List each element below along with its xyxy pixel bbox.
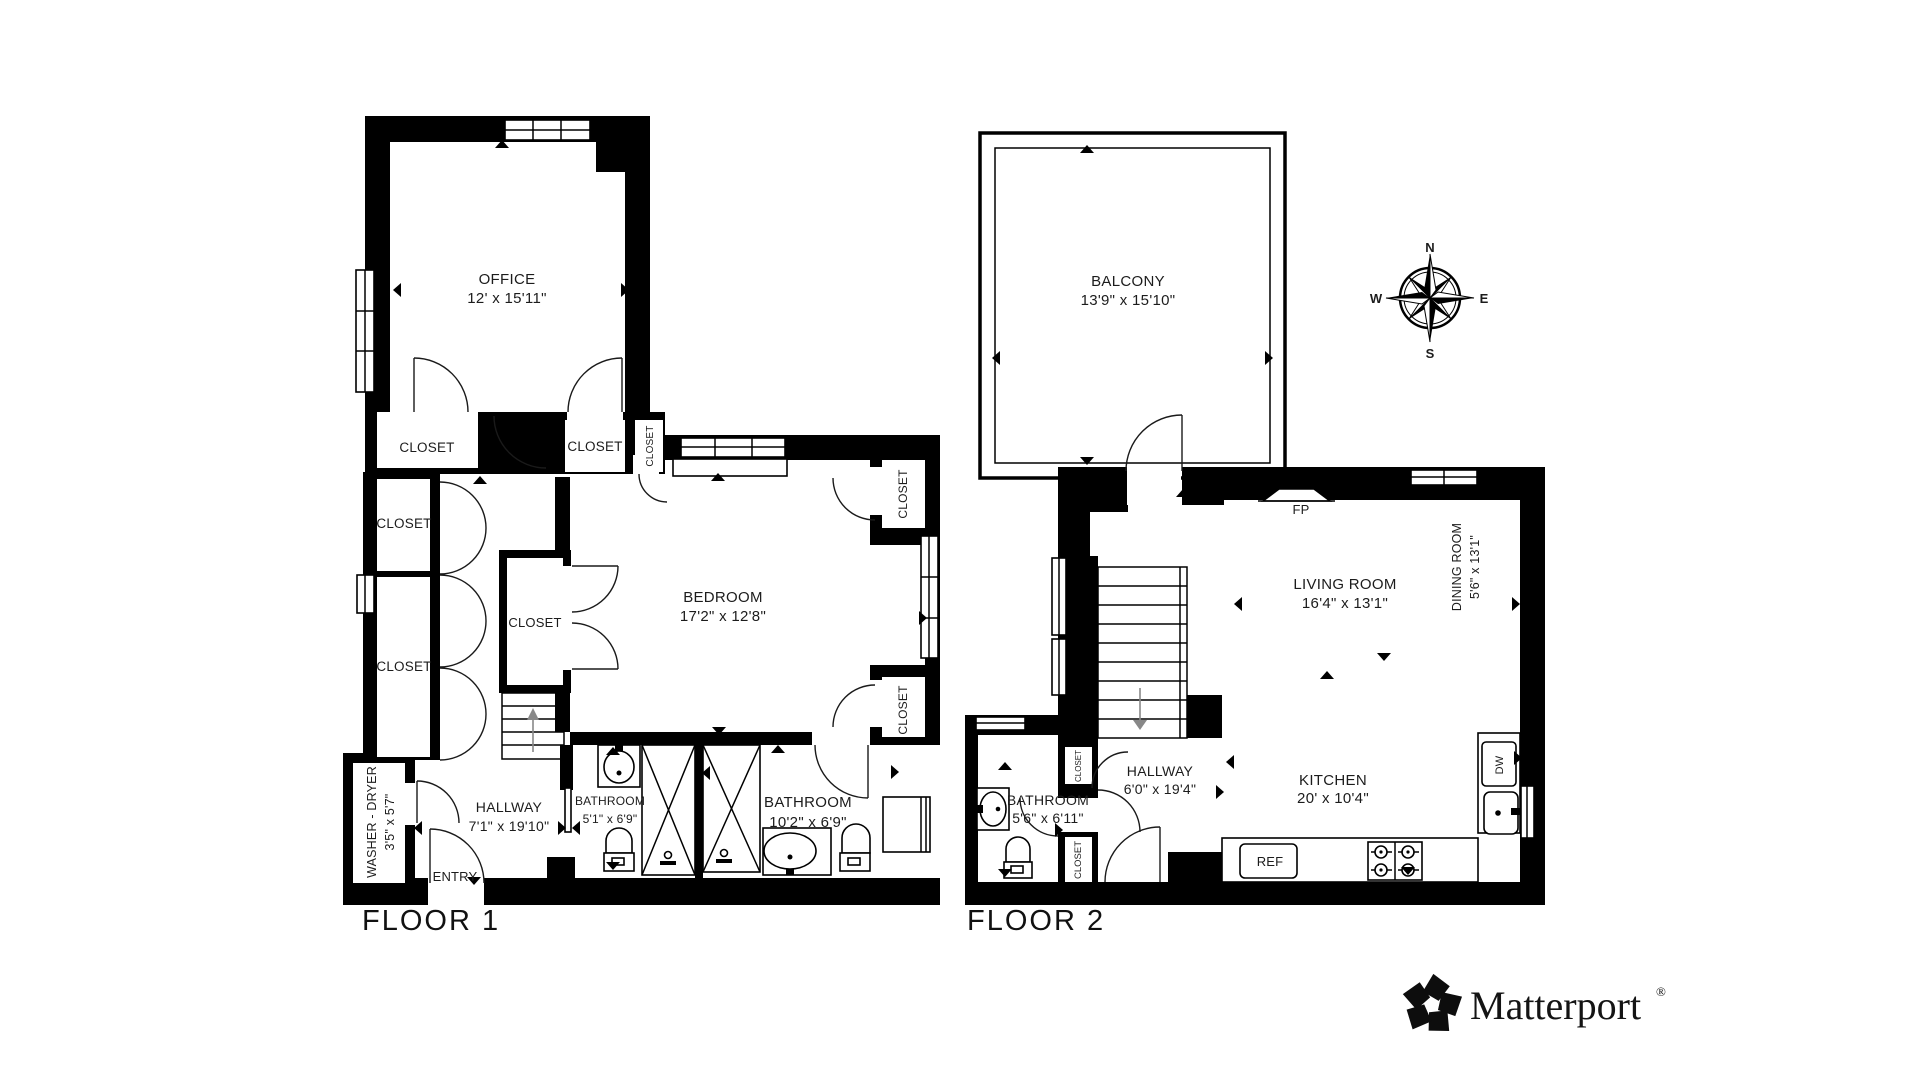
room-dims-kitchen: 20' x 10'4": [1297, 790, 1369, 807]
sink-icon: [763, 828, 831, 875]
matterport-wordmark: Matterport: [1470, 983, 1641, 1028]
floorplan-page: OFFICE 12' x 15'11" CLOSET CLOSET CLOSET…: [0, 0, 1920, 1080]
room-label-closet-c: CLOSET: [645, 425, 656, 466]
fireplace-label: FP: [1292, 502, 1309, 517]
kitchen-sink-icon: [1484, 792, 1521, 834]
room-label-closet-f: CLOSET: [508, 615, 561, 630]
dishwasher-label: DW: [1494, 755, 1506, 774]
window-stair-left-icon: [1052, 558, 1066, 635]
room-label-balcony: BALCONY: [1091, 273, 1165, 290]
room-label-bathroom2: BATHROOM: [1007, 792, 1089, 808]
stove-icon: [1368, 842, 1422, 880]
floorplan-drawing: OFFICE 12' x 15'11" CLOSET CLOSET CLOSET…: [0, 0, 1920, 1080]
sink-icon: [977, 788, 1009, 830]
window-kitchen-right-icon: [1521, 786, 1534, 838]
room-label-closet-a: CLOSET: [399, 440, 454, 455]
compass-south-label: S: [1426, 346, 1435, 361]
room-dims-hallway: 7'1" x 19'10": [469, 818, 550, 834]
room-dims-bedroom: 17'2" x 12'8": [680, 608, 766, 625]
room-label-washer-dryer: WASHER - DRYER: [365, 766, 379, 878]
room-label-closet-h: CLOSET: [896, 685, 910, 735]
window-bedroom-right-icon: [921, 536, 938, 658]
shower-icon: [703, 745, 760, 872]
window-bathroom-icon: [976, 717, 1025, 730]
floor1-title: FLOOR 1: [362, 905, 500, 937]
room-dims-bathroom2: 5'6" x 6'11": [1012, 810, 1084, 826]
matterport-logo-icon: [1395, 970, 1470, 1044]
pocket-door-icon: [565, 788, 571, 832]
window-bedroom-top-icon: [673, 438, 787, 476]
room-label-living-room: LIVING ROOM: [1293, 576, 1396, 593]
room-label-bathroom-small: BATHROOM: [575, 794, 645, 808]
floor2-title: FLOOR 2: [967, 905, 1105, 937]
room-label-closet-b: CLOSET: [567, 439, 622, 454]
room-dims-washer-dryer: 3'5" x 5'7": [383, 794, 397, 851]
room-dims-balcony: 13'9" x 15'10": [1081, 292, 1176, 309]
floor1-plan: OFFICE 12' x 15'11" CLOSET CLOSET CLOSET…: [343, 116, 940, 937]
room-dims-dining-room: 5'6" x 13'1": [1468, 535, 1482, 599]
room-label-kitchen: KITCHEN: [1299, 772, 1367, 789]
room-label-closet-g: CLOSET: [896, 469, 910, 519]
floor2-plan: BALCONY 13'9" x 15'10" FP LIVING ROOM 16…: [965, 133, 1545, 937]
room-label-bathroom-large: BATHROOM: [764, 794, 852, 811]
room-label-closet-e: CLOSET: [376, 659, 431, 674]
room-dims-living-room: 16'4" x 13'1": [1302, 595, 1388, 612]
vanity-icon: [883, 797, 930, 852]
room-label-bedroom: BEDROOM: [683, 589, 763, 606]
compass-north-label: N: [1425, 240, 1434, 255]
room-dims-office: 12' x 15'11": [467, 290, 546, 307]
room-label-closet-lower: CLOSET: [1073, 841, 1084, 879]
room-dims-bathroom-large: 10'2" x 6'9": [769, 814, 847, 831]
shower-icon: [642, 745, 695, 875]
window-closet-left-icon: [357, 575, 374, 613]
compass-rose-icon: N E S W: [1370, 240, 1489, 361]
refrigerator-label: REF: [1257, 854, 1284, 869]
window-office-top-icon: [505, 120, 590, 140]
room-label-office: OFFICE: [479, 271, 536, 288]
room-label-entry: ENTRY: [433, 869, 478, 884]
matterport-branding: Matterport ®: [1395, 970, 1666, 1044]
room-dims-bathroom-small: 5'1" x 6'9": [583, 812, 638, 826]
room-label-hallway2: HALLWAY: [1127, 763, 1194, 779]
compass-east-label: E: [1480, 291, 1489, 306]
room-label-closet-upper: CLOSET: [1074, 750, 1083, 782]
room-label-dining-room: DINING ROOM: [1450, 523, 1464, 611]
sink-icon: [598, 745, 640, 787]
window-livingroom-top-icon: [1411, 470, 1477, 485]
room-label-closet-d: CLOSET: [376, 516, 431, 531]
window-stair-left-icon: [1052, 639, 1066, 695]
room-dims-hallway2: 6'0" x 19'4": [1124, 781, 1197, 797]
toilet-icon: [840, 824, 870, 871]
window-office-left-icon: [356, 270, 374, 392]
compass-west-label: W: [1370, 291, 1383, 306]
room-label-hallway: HALLWAY: [476, 799, 543, 815]
registered-trademark-symbol: ®: [1656, 984, 1666, 999]
